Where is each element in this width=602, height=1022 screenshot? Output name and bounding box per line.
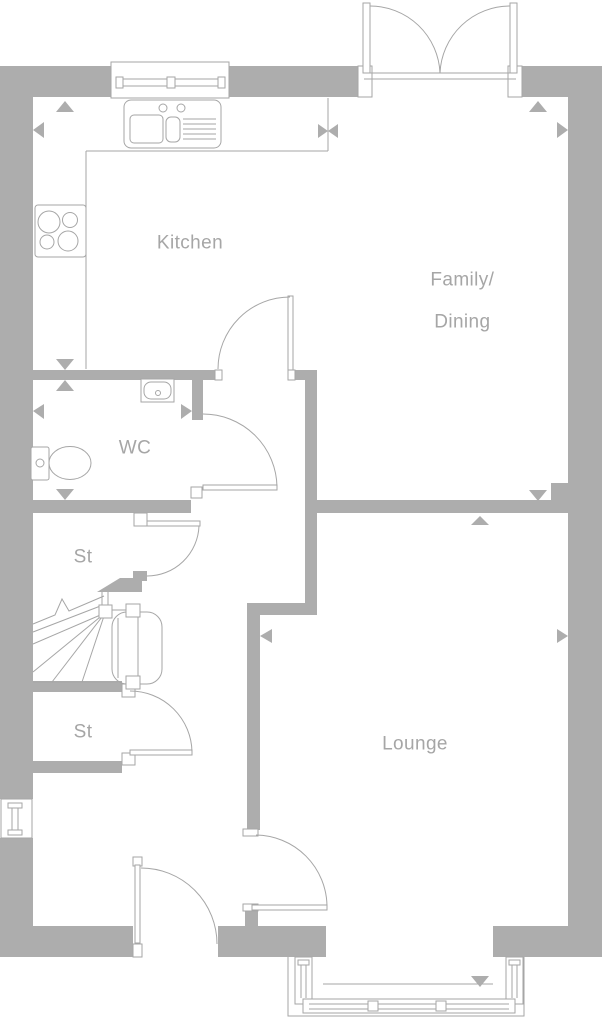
dimension-arrow-icon <box>56 380 74 391</box>
wc-door-icon <box>191 414 277 498</box>
kitchen-sink-icon <box>124 100 221 148</box>
wash-basin-icon <box>141 379 174 402</box>
kitchen-door-icon <box>215 296 295 380</box>
room-label-family-dining: Family/ Dining <box>408 249 495 354</box>
dimension-arrow-icon <box>471 516 489 525</box>
room-label-lounge: Lounge <box>382 734 448 755</box>
floor-plan-drawing <box>0 0 602 1022</box>
dimension-arrow-icon <box>557 122 568 138</box>
dimension-arrow-icon <box>557 629 568 643</box>
dimension-arrow-icon <box>56 359 74 370</box>
dimension-arrow-icon <box>529 490 547 501</box>
dimension-arrow-icon <box>260 629 272 643</box>
room-label-kitchen: Kitchen <box>157 233 223 254</box>
side-window-icon <box>1 799 32 838</box>
room-label-wc: WC <box>119 438 151 459</box>
interior-walls <box>33 370 568 926</box>
room-label-family-line2: Dining <box>434 312 490 333</box>
hob-icon <box>35 205 86 257</box>
storage-upper-door-icon <box>134 513 200 576</box>
dimension-arrow-icon <box>181 404 192 419</box>
staircase-icon <box>33 592 162 689</box>
dimension-markers <box>33 101 568 987</box>
lounge-door-icon <box>243 829 327 911</box>
floor-plan: Kitchen Family/ Dining WC St St Lounge <box>0 0 602 1022</box>
room-label-storage-upper: St <box>74 547 93 568</box>
dimension-arrow-icon <box>471 976 489 987</box>
kitchen-window-icon <box>111 62 229 98</box>
toilet-icon <box>31 447 91 481</box>
room-label-storage-lower: St <box>74 722 93 743</box>
bay-window-icon <box>288 957 524 1016</box>
dimension-arrow-icon <box>529 101 547 112</box>
dimension-arrow-icon <box>33 404 44 419</box>
dimension-arrow-icon <box>328 124 338 138</box>
front-door-icon <box>133 857 217 957</box>
dimension-arrow-icon <box>56 101 74 112</box>
french-doors-icon <box>358 3 522 97</box>
dimension-arrow-icon <box>56 489 74 500</box>
storage-lower-door-icon <box>122 684 192 765</box>
dimension-arrow-icon <box>318 124 328 138</box>
room-label-family-line1: Family/ <box>430 270 494 291</box>
dimension-arrow-icon <box>33 122 44 138</box>
